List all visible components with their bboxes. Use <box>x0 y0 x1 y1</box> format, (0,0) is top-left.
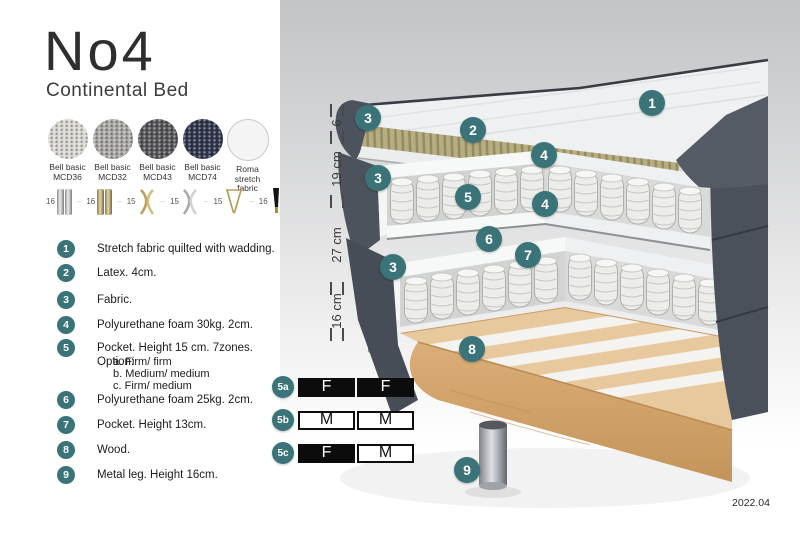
leg-height: 15 <box>213 197 222 206</box>
dimension-tick <box>342 131 344 144</box>
feature-options: a. Firm/ firm b. Medium/ medium c. Firm/… <box>113 356 278 393</box>
callout-4: 4 <box>531 142 557 168</box>
feature-number-badge: 4 <box>57 316 75 334</box>
firmness-cell: M <box>357 411 414 430</box>
fabric-swatch-icon <box>227 119 269 161</box>
feature-option: c. Firm/ medium <box>113 380 278 392</box>
page-title: No4 <box>44 18 156 83</box>
twisted-gold-leg-icon <box>138 189 156 215</box>
fabric-code: MCD32 <box>98 172 127 182</box>
fabric-code: MCD43 <box>143 172 172 182</box>
firmness-cell: M <box>357 444 414 463</box>
fabric-swatch-icon <box>138 119 178 159</box>
leg-height: 15 <box>127 197 136 206</box>
dimension-label: 27 cm <box>329 220 343 270</box>
feature-text: Stretch fabric quilted with wadding. <box>97 242 275 256</box>
fabric-swatch: Roma stretch fabric <box>227 119 268 194</box>
callout-3: 3 <box>365 165 391 191</box>
feature-number-badge: 6 <box>57 391 75 409</box>
fabric-swatch-row: Bell basic MCD36 Bell basic MCD32 Bell b… <box>47 119 268 194</box>
firmness-badge: 5a <box>272 376 294 398</box>
leg-option: 15 <box>127 189 156 215</box>
feature-text: Polyurethane foam 30kg. 2cm. <box>97 318 275 332</box>
fabric-swatch: Bell basic MCD43 <box>137 119 178 194</box>
fabric-name: Bell basic <box>94 162 130 172</box>
dimension-label: 19 cm <box>329 144 343 194</box>
firmness-bar: F F <box>298 378 414 397</box>
feature-number-badge: 5 <box>57 339 75 357</box>
dimension-tick <box>330 195 332 208</box>
page-subtitle: Continental Bed <box>46 80 189 102</box>
leg-height: 16 <box>46 197 55 206</box>
dimension-tick <box>330 131 332 144</box>
firmness-row-5c: 5c F M <box>272 442 414 464</box>
twisted-silver-leg-icon <box>181 189 199 215</box>
firmness-row-5a: 5a F F <box>272 376 414 398</box>
firmness-badge: 5b <box>272 409 294 431</box>
feature-text: Pocket. Height 13cm. <box>97 418 275 432</box>
feature-number-badge: 9 <box>57 466 75 484</box>
leg-option: 15 <box>213 189 244 215</box>
leg-option: 16 <box>46 189 72 215</box>
fabric-name: Roma <box>236 164 259 174</box>
callout-9: 9 <box>454 457 480 483</box>
firmness-cell: F <box>298 378 355 397</box>
leg-height: 16 <box>259 197 268 206</box>
firmness-bar: F M <box>298 444 414 463</box>
feature-option: b. Medium/ medium <box>113 368 278 380</box>
feature-number-badge: 1 <box>57 240 75 258</box>
feature-text: Fabric. <box>97 293 275 307</box>
divider: – <box>161 197 165 206</box>
feature-text: Latex. 4cm. <box>97 266 275 280</box>
callout-1: 1 <box>639 90 665 116</box>
fabric-name: Bell basic <box>139 162 175 172</box>
divider: – <box>117 197 121 206</box>
dimension-tick <box>342 328 344 341</box>
callout-3: 3 <box>380 254 406 280</box>
feature-text: Metal leg. Height 16cm. <box>97 468 275 482</box>
divider: – <box>249 197 253 206</box>
feature-text: Polyurethane foam 25kg. 2cm. <box>97 393 275 407</box>
dimension-tick <box>342 195 344 208</box>
feature-text: Wood. <box>97 443 275 457</box>
fabric-swatch-icon <box>183 119 223 159</box>
firmness-badge: 5c <box>272 442 294 464</box>
divider: – <box>204 197 208 206</box>
fabric-swatch: Bell basic MCD74 <box>182 119 223 194</box>
callout-8: 8 <box>459 336 485 362</box>
hairpin-gold-leg-icon <box>224 189 244 215</box>
feature-number-badge: 3 <box>57 291 75 309</box>
fabric-swatch-icon <box>93 119 133 159</box>
cylinder-gold-leg-icon <box>97 189 112 215</box>
fabric-code: MCD74 <box>188 172 217 182</box>
fabric-swatch-icon <box>48 119 88 159</box>
firmness-cell: F <box>298 444 355 463</box>
leg-option: 15 <box>170 189 199 215</box>
callout-3: 3 <box>355 105 381 131</box>
feature-number-badge: 7 <box>57 416 75 434</box>
fabric-name: Bell basic <box>184 162 220 172</box>
fabric-name: Bell basic <box>49 162 85 172</box>
fabric-swatch: Bell basic MCD32 <box>92 119 133 194</box>
callout-7: 7 <box>515 242 541 268</box>
dimension-tick <box>330 328 332 341</box>
fabric-swatch: Bell basic MCD36 <box>47 119 88 194</box>
firmness-cell: M <box>298 411 355 430</box>
feature-number-badge: 8 <box>57 441 75 459</box>
leg-height: 15 <box>170 197 179 206</box>
callout-5: 5 <box>455 184 481 210</box>
product-sheet: No4 Continental Bed Bell basic MCD36 Bel… <box>0 0 800 533</box>
illustration-panel: 6 19 cm 27 cm 16 cm 1 2 3 3 3 4 4 5 6 7 … <box>280 0 800 533</box>
leg-height: 16 <box>86 197 95 206</box>
version-stamp: 2022.04 <box>732 497 770 509</box>
callout-4: 4 <box>532 191 558 217</box>
firmness-row-5b: 5b M M <box>272 409 414 431</box>
leg-option: 16 <box>86 189 112 215</box>
callout-6: 6 <box>476 226 502 252</box>
feature-number-badge: 2 <box>57 264 75 282</box>
firmness-bar: M M <box>298 411 414 430</box>
cylinder-silver-leg-icon <box>57 189 72 215</box>
info-panel: No4 Continental Bed Bell basic MCD36 Bel… <box>0 0 280 533</box>
callout-2: 2 <box>460 117 486 143</box>
leg-options-row: 16 – 16 – 15 – 15 <box>46 188 288 215</box>
feature-option: a. Firm/ firm <box>113 356 278 368</box>
firmness-cell: F <box>357 378 414 397</box>
divider: – <box>77 197 81 206</box>
fabric-code: MCD36 <box>53 172 82 182</box>
